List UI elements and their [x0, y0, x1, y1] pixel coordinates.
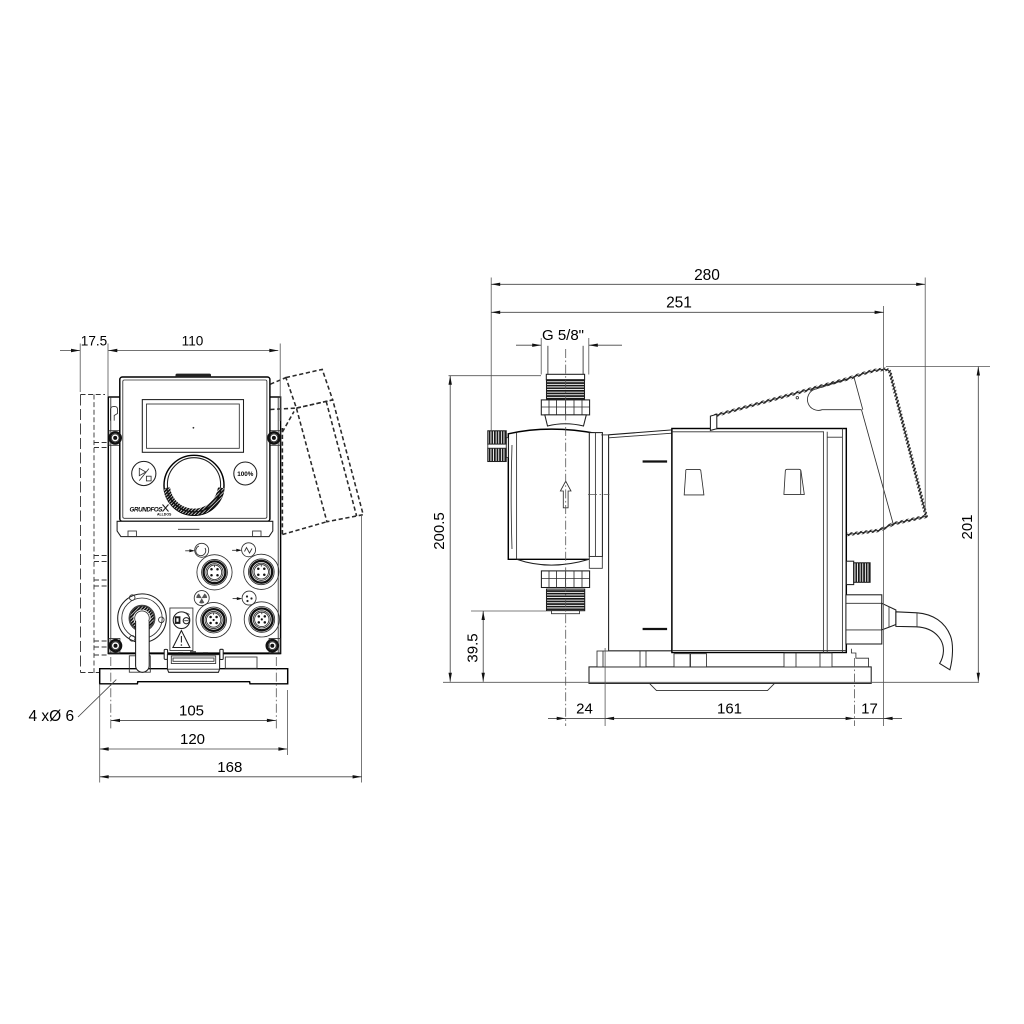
- svg-text:105: 105: [179, 703, 204, 720]
- svg-text:251: 251: [666, 295, 692, 312]
- svg-text:G 5/8": G 5/8": [542, 327, 584, 344]
- svg-text:100%: 100%: [237, 471, 254, 478]
- svg-text:201: 201: [959, 514, 976, 539]
- svg-text:168: 168: [217, 759, 242, 776]
- svg-text:110: 110: [182, 333, 204, 348]
- svg-text:24: 24: [576, 701, 593, 718]
- svg-text:120: 120: [180, 731, 205, 748]
- svg-text:ALLDOS: ALLDOS: [157, 513, 172, 517]
- svg-text:4 xØ 6: 4 xØ 6: [29, 708, 75, 725]
- svg-text:17.5: 17.5: [81, 333, 107, 348]
- svg-text:161: 161: [717, 701, 742, 718]
- svg-text:39.5: 39.5: [465, 633, 482, 662]
- svg-text:280: 280: [694, 267, 720, 284]
- svg-text:17: 17: [861, 701, 878, 718]
- svg-text:200.5: 200.5: [431, 512, 448, 550]
